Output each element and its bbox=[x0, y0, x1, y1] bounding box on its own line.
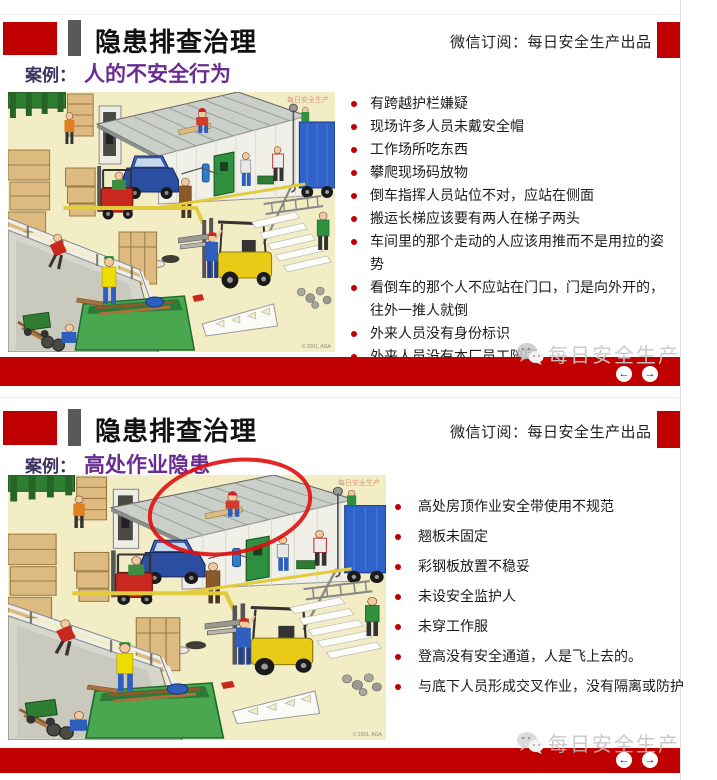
illustration-watermark: 每日安全生产 bbox=[338, 478, 380, 488]
slide-2: 隐患排查治理 微信订阅：每日安全生产出品 案例：高处作业隐患 每日安全生产 © … bbox=[0, 397, 680, 780]
slide-title: 隐患排查治理 bbox=[95, 411, 257, 448]
watermark-text: 每日安全生产 bbox=[548, 339, 680, 368]
wechat-bubbles-icon bbox=[516, 731, 544, 755]
brand-watermark: 每日安全生产 bbox=[516, 339, 680, 368]
bullet-item: 与底下人员形成交叉作业，没有隔离或防护 bbox=[388, 678, 688, 695]
bullet-item: 登高没有安全通道，人是飞上去的。 bbox=[388, 648, 688, 665]
bullet-item: 倒车指挥人员站位不对，应站在侧面 bbox=[344, 184, 666, 207]
illustration-watermark: 每日安全生产 bbox=[287, 95, 329, 105]
illustration-credit: © 2001, AGA bbox=[353, 732, 382, 738]
wechat-subscription-line: 微信订阅：每日安全生产出品 bbox=[450, 31, 652, 52]
warehouse-scene-svg bbox=[8, 92, 335, 352]
warehouse-hazard-illustration: 每日安全生产 © 2001, AGA bbox=[8, 92, 335, 352]
page: 隐患排查治理 微信订阅：每日安全生产出品 案例：人的不安全行为 每日安全生产 ©… bbox=[0, 0, 717, 780]
slide-1: 隐患排查治理 微信订阅：每日安全生产出品 案例：人的不安全行为 每日安全生产 ©… bbox=[0, 0, 680, 392]
case-value: 高处作业隐患 bbox=[84, 454, 210, 477]
bullet-item: 未穿工作服 bbox=[388, 618, 688, 635]
slide-title: 隐患排查治理 bbox=[95, 22, 257, 59]
prev-slide-button[interactable]: ← bbox=[616, 752, 632, 768]
bullet-item: 搬运长梯应该要有两人在梯子两头 bbox=[344, 207, 666, 230]
illustration-credit: © 2001, AGA bbox=[302, 344, 331, 350]
watermark-text: 每日安全生产 bbox=[548, 728, 680, 757]
slide1-top-edge bbox=[0, 14, 680, 15]
case-row: 案例：人的不安全行为 bbox=[25, 58, 231, 88]
bullet-item: 工作场所吃东西 bbox=[344, 138, 666, 161]
header-red-block-left bbox=[3, 22, 57, 55]
warehouse-hazard-illustration: 每日安全生产 © 2001, AGA bbox=[8, 475, 386, 740]
header-gray-bar bbox=[68, 20, 81, 56]
bullet-item: 车间里的那个走动的人应该用推而不是用拉的姿势 bbox=[344, 230, 666, 276]
case-label: 案例： bbox=[25, 457, 76, 476]
header-red-block-right bbox=[657, 411, 680, 448]
bullet-item: 攀爬现场码放物 bbox=[344, 161, 666, 184]
bullet-item: 彩钢板放置不稳妥 bbox=[388, 558, 688, 575]
slide2-top-edge bbox=[0, 397, 680, 398]
hazard-bullet-list: 高处房顶作业安全带使用不规范 翘板未固定 彩钢板放置不稳妥 未设安全监护人 未穿… bbox=[388, 498, 688, 708]
bullet-item: 翘板未固定 bbox=[388, 528, 688, 545]
bullet-item: 看倒车的那个人不应站在门口，门是向外开的，往外一推人就倒 bbox=[344, 276, 666, 322]
next-slide-button[interactable]: → bbox=[642, 752, 658, 768]
wechat-bubbles-icon bbox=[516, 342, 544, 366]
wechat-subscription-line: 微信订阅：每日安全生产出品 bbox=[450, 421, 652, 442]
bullet-item: 有跨越护栏嫌疑 bbox=[344, 92, 666, 115]
brand-watermark: 每日安全生产 bbox=[516, 728, 680, 757]
case-label: 案例： bbox=[25, 66, 76, 85]
bullet-item: 现场许多人员未戴安全帽 bbox=[344, 115, 666, 138]
header-red-block-left bbox=[3, 411, 57, 445]
header-gray-bar bbox=[68, 409, 81, 446]
bullet-item: 未设安全监护人 bbox=[388, 588, 688, 605]
header-red-block-right bbox=[657, 22, 680, 58]
case-value: 人的不安全行为 bbox=[84, 63, 231, 86]
hazard-bullet-list: 有跨越护栏嫌疑 现场许多人员未戴安全帽 工作场所吃东西 攀爬现场码放物 倒车指挥… bbox=[344, 92, 666, 368]
bullet-item: 高处房顶作业安全带使用不规范 bbox=[388, 498, 688, 515]
prev-slide-button[interactable]: ← bbox=[616, 366, 632, 382]
next-slide-button[interactable]: → bbox=[642, 366, 658, 382]
warehouse-scene-svg bbox=[8, 475, 386, 740]
